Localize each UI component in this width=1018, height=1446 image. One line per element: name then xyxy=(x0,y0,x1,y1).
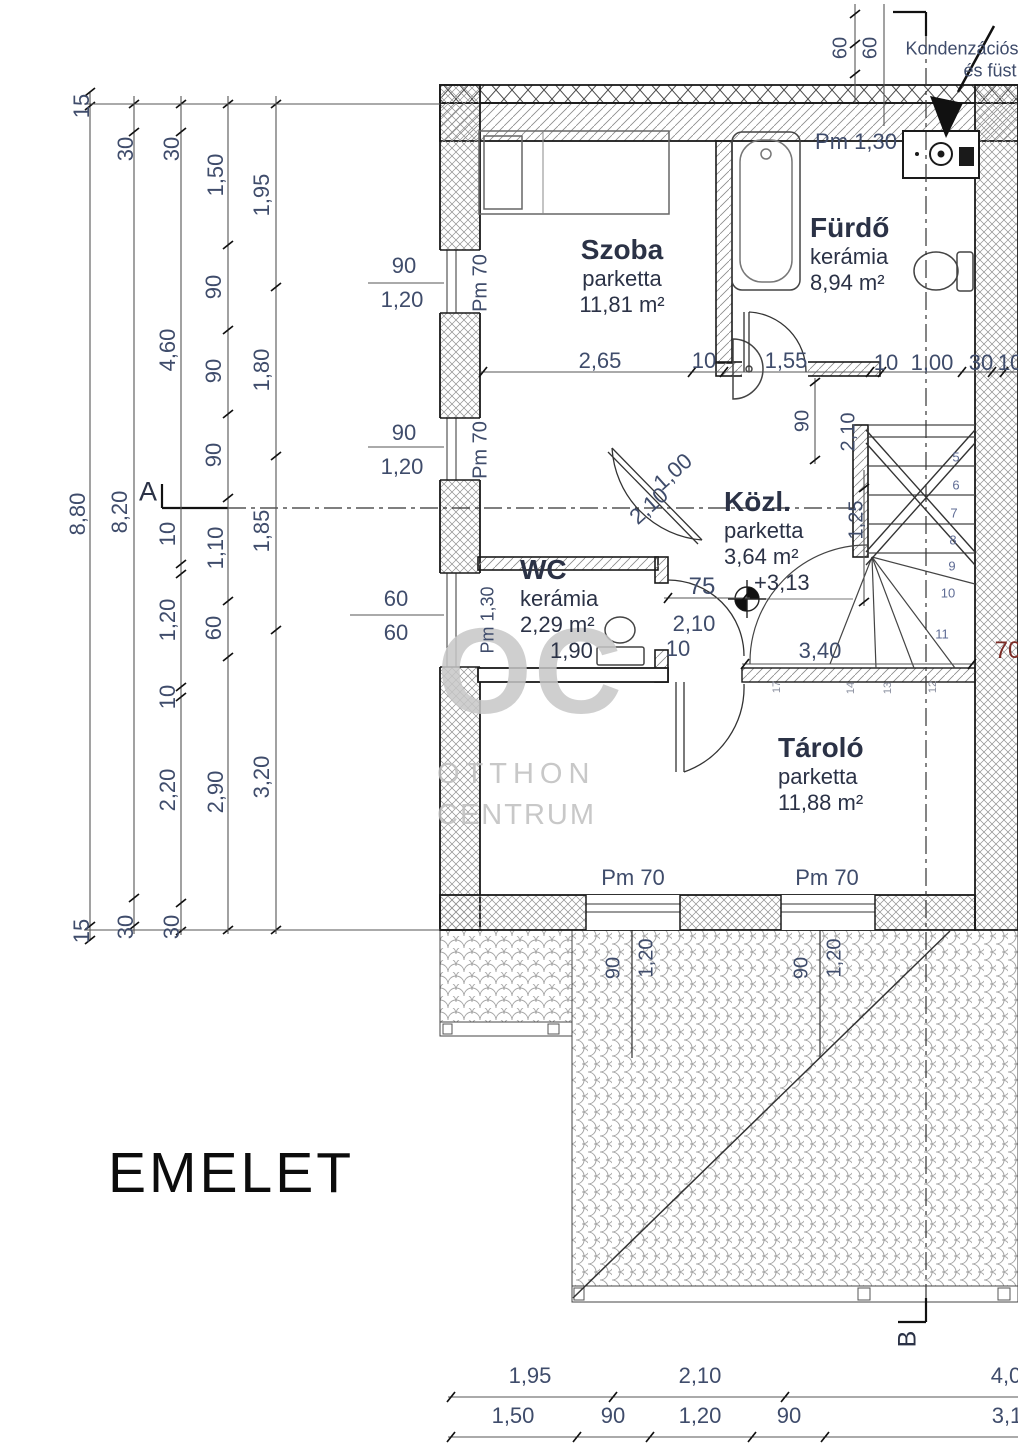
right-exterior-wall xyxy=(975,85,1018,930)
watermark-logo: OC OTTHON CENTRUM xyxy=(437,610,624,832)
floorplan-page: { "title": { "floor_label": "EMELET" }, … xyxy=(0,0,1018,1446)
stair-break-cross xyxy=(866,430,975,565)
roof-area xyxy=(440,895,1018,1302)
watermark-centrum: CENTRUM xyxy=(437,799,624,832)
door-tarolo xyxy=(676,682,744,772)
doors xyxy=(608,312,806,772)
watermark-otthon: OTTHON xyxy=(437,758,624,791)
winder-arc xyxy=(750,545,868,664)
roof-main-edge-band xyxy=(572,1286,1018,1302)
bed xyxy=(479,131,669,214)
watermark-oc: OC xyxy=(437,610,624,732)
toilet-furdo xyxy=(914,252,973,291)
wall-wc-east-top xyxy=(655,557,668,583)
flue-arrow-line xyxy=(958,26,994,92)
door-szoba xyxy=(608,448,702,544)
top-truss-band xyxy=(440,85,1018,103)
roof-main-hatch xyxy=(572,930,1018,1286)
flue-box xyxy=(903,131,979,178)
wall-under-stair xyxy=(742,668,975,682)
window-bottom-1 xyxy=(586,895,680,930)
roof-left-hatch xyxy=(440,930,572,1022)
wall-szoba-furdo xyxy=(716,141,732,363)
level-marker xyxy=(728,580,853,618)
window-szoba-1 xyxy=(438,250,482,313)
door-wc xyxy=(668,580,744,656)
floor-title: EMELET xyxy=(108,1140,354,1206)
window-szoba-2 xyxy=(438,418,482,480)
window-bottom-2 xyxy=(781,895,875,930)
bathtub xyxy=(732,132,800,290)
bottom-exterior-wall xyxy=(440,895,975,930)
wall-wc-north xyxy=(478,557,658,570)
